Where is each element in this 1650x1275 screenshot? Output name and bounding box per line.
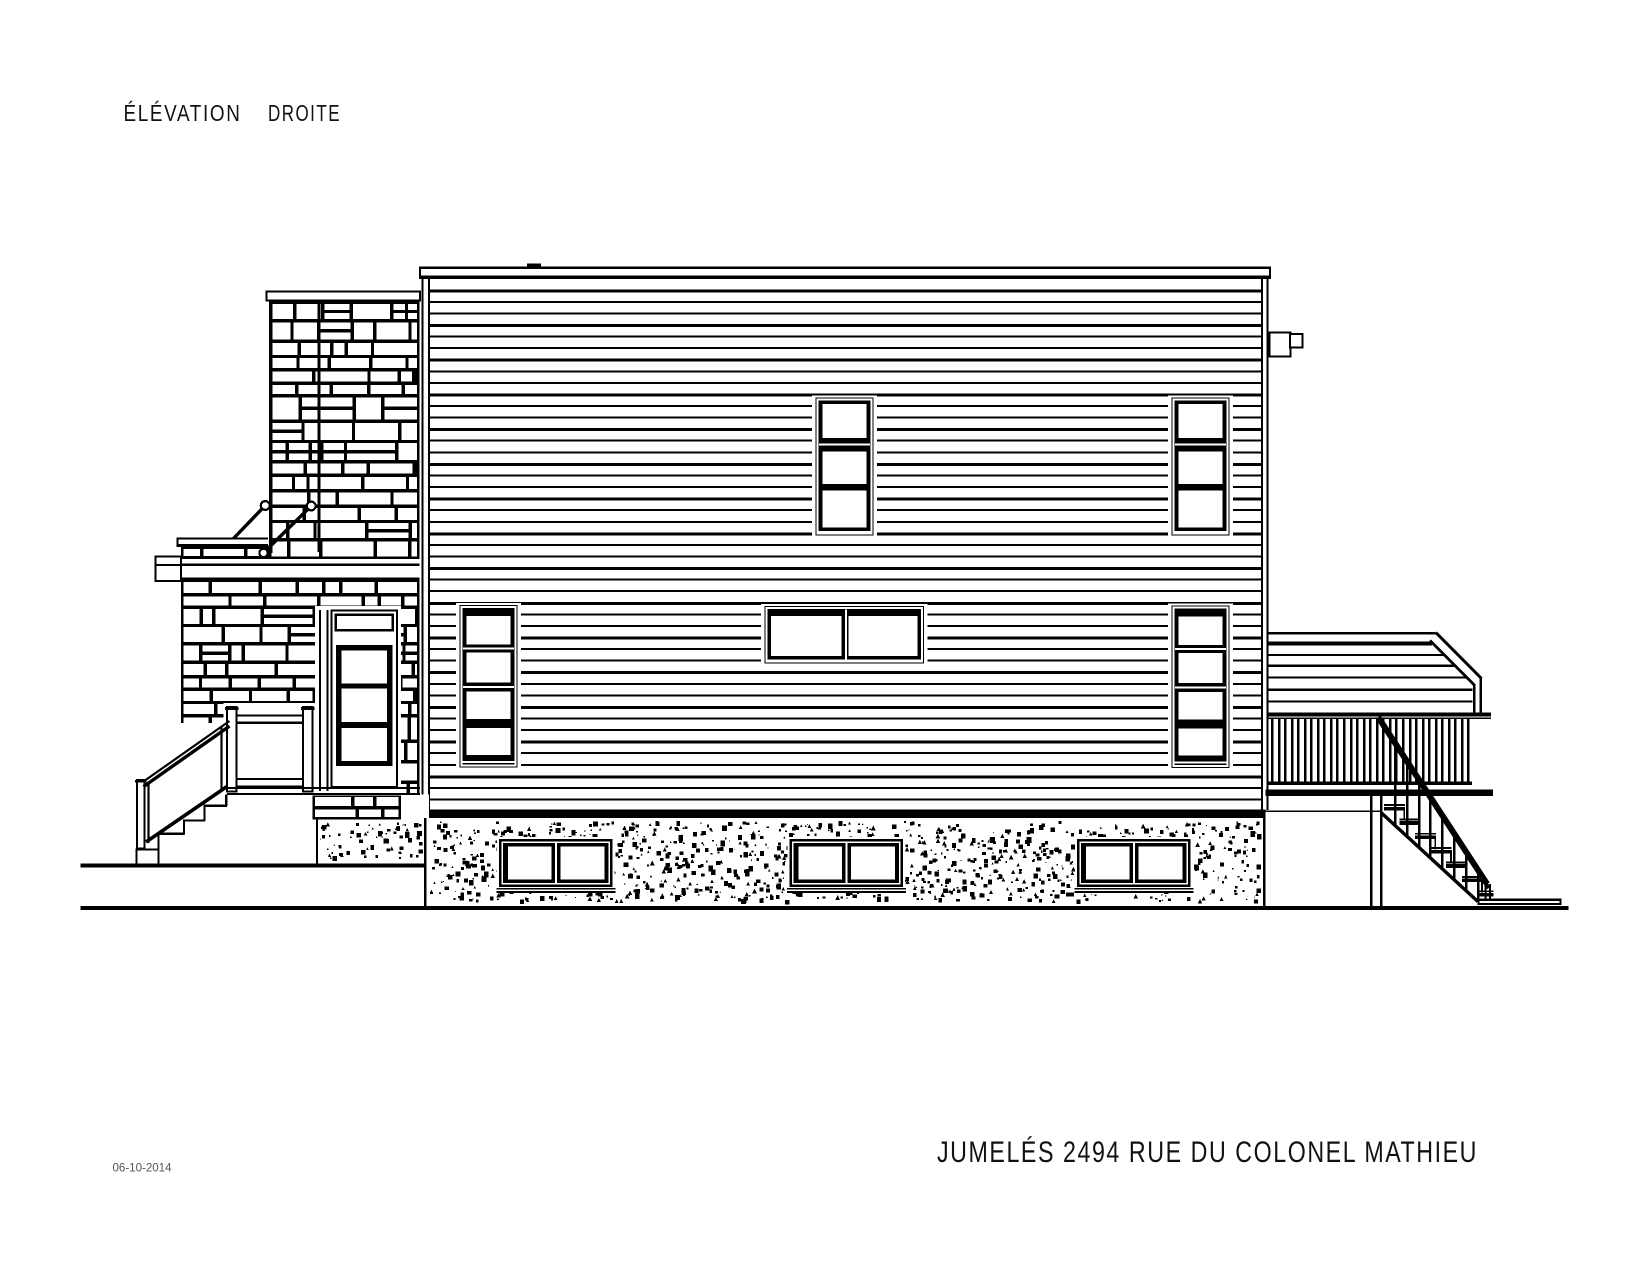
svg-text:DROITE: DROITE (268, 100, 341, 126)
svg-text:06-10-2014: 06-10-2014 (113, 1163, 173, 1175)
svg-text:ÉLÉVATION: ÉLÉVATION (124, 100, 242, 126)
svg-text:JUMELÉS 2494 RUE DU COLONEL MA: JUMELÉS 2494 RUE DU COLONEL MATHIEU (937, 1136, 1478, 1169)
